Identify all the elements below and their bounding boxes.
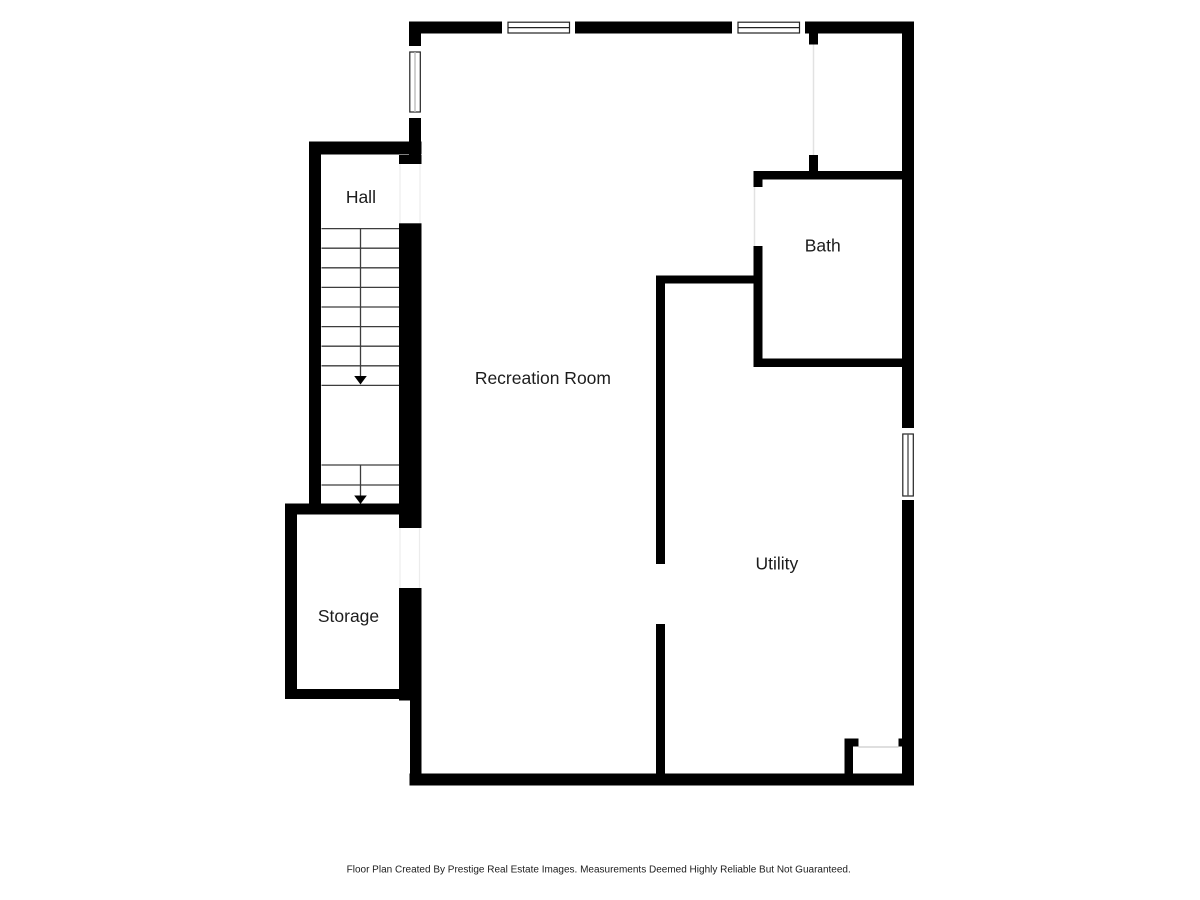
svg-text:Recreation Room: Recreation Room	[475, 368, 611, 388]
svg-text:Hall: Hall	[346, 187, 376, 207]
svg-text:Bath: Bath	[805, 235, 841, 255]
svg-text:Utility: Utility	[756, 554, 799, 574]
svg-text:Floor Plan Created By Prestige: Floor Plan Created By Prestige Real Esta…	[347, 865, 851, 876]
svg-text:Storage: Storage	[318, 606, 379, 626]
